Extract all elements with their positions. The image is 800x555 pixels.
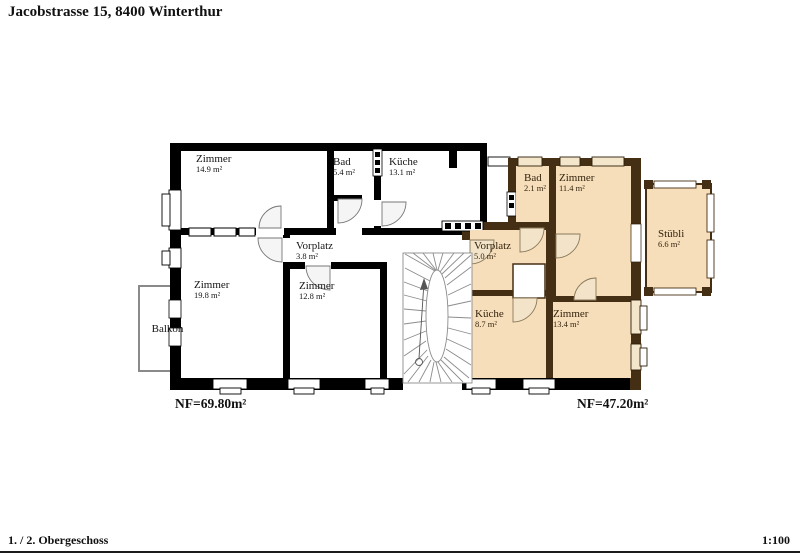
- balcony-label: Balkon: [139, 286, 196, 371]
- nf-total-left: NF=69.80m²: [175, 396, 246, 412]
- stuebli-structure: [644, 180, 714, 296]
- staircase: [403, 253, 472, 383]
- floorplan-drawing: [0, 0, 800, 555]
- floor-designation: 1. / 2. Obergeschoss: [8, 533, 108, 548]
- interior-window-band: [189, 228, 255, 236]
- floorplan-page: Jacobstrasse 15, 8400 Winterthur: [0, 0, 800, 555]
- bottom-rule: [0, 551, 800, 553]
- scale-indicator: 1:100: [762, 533, 790, 548]
- nf-total-right: NF=47.20m²: [577, 396, 648, 412]
- shaft-symbol-left: [373, 149, 382, 176]
